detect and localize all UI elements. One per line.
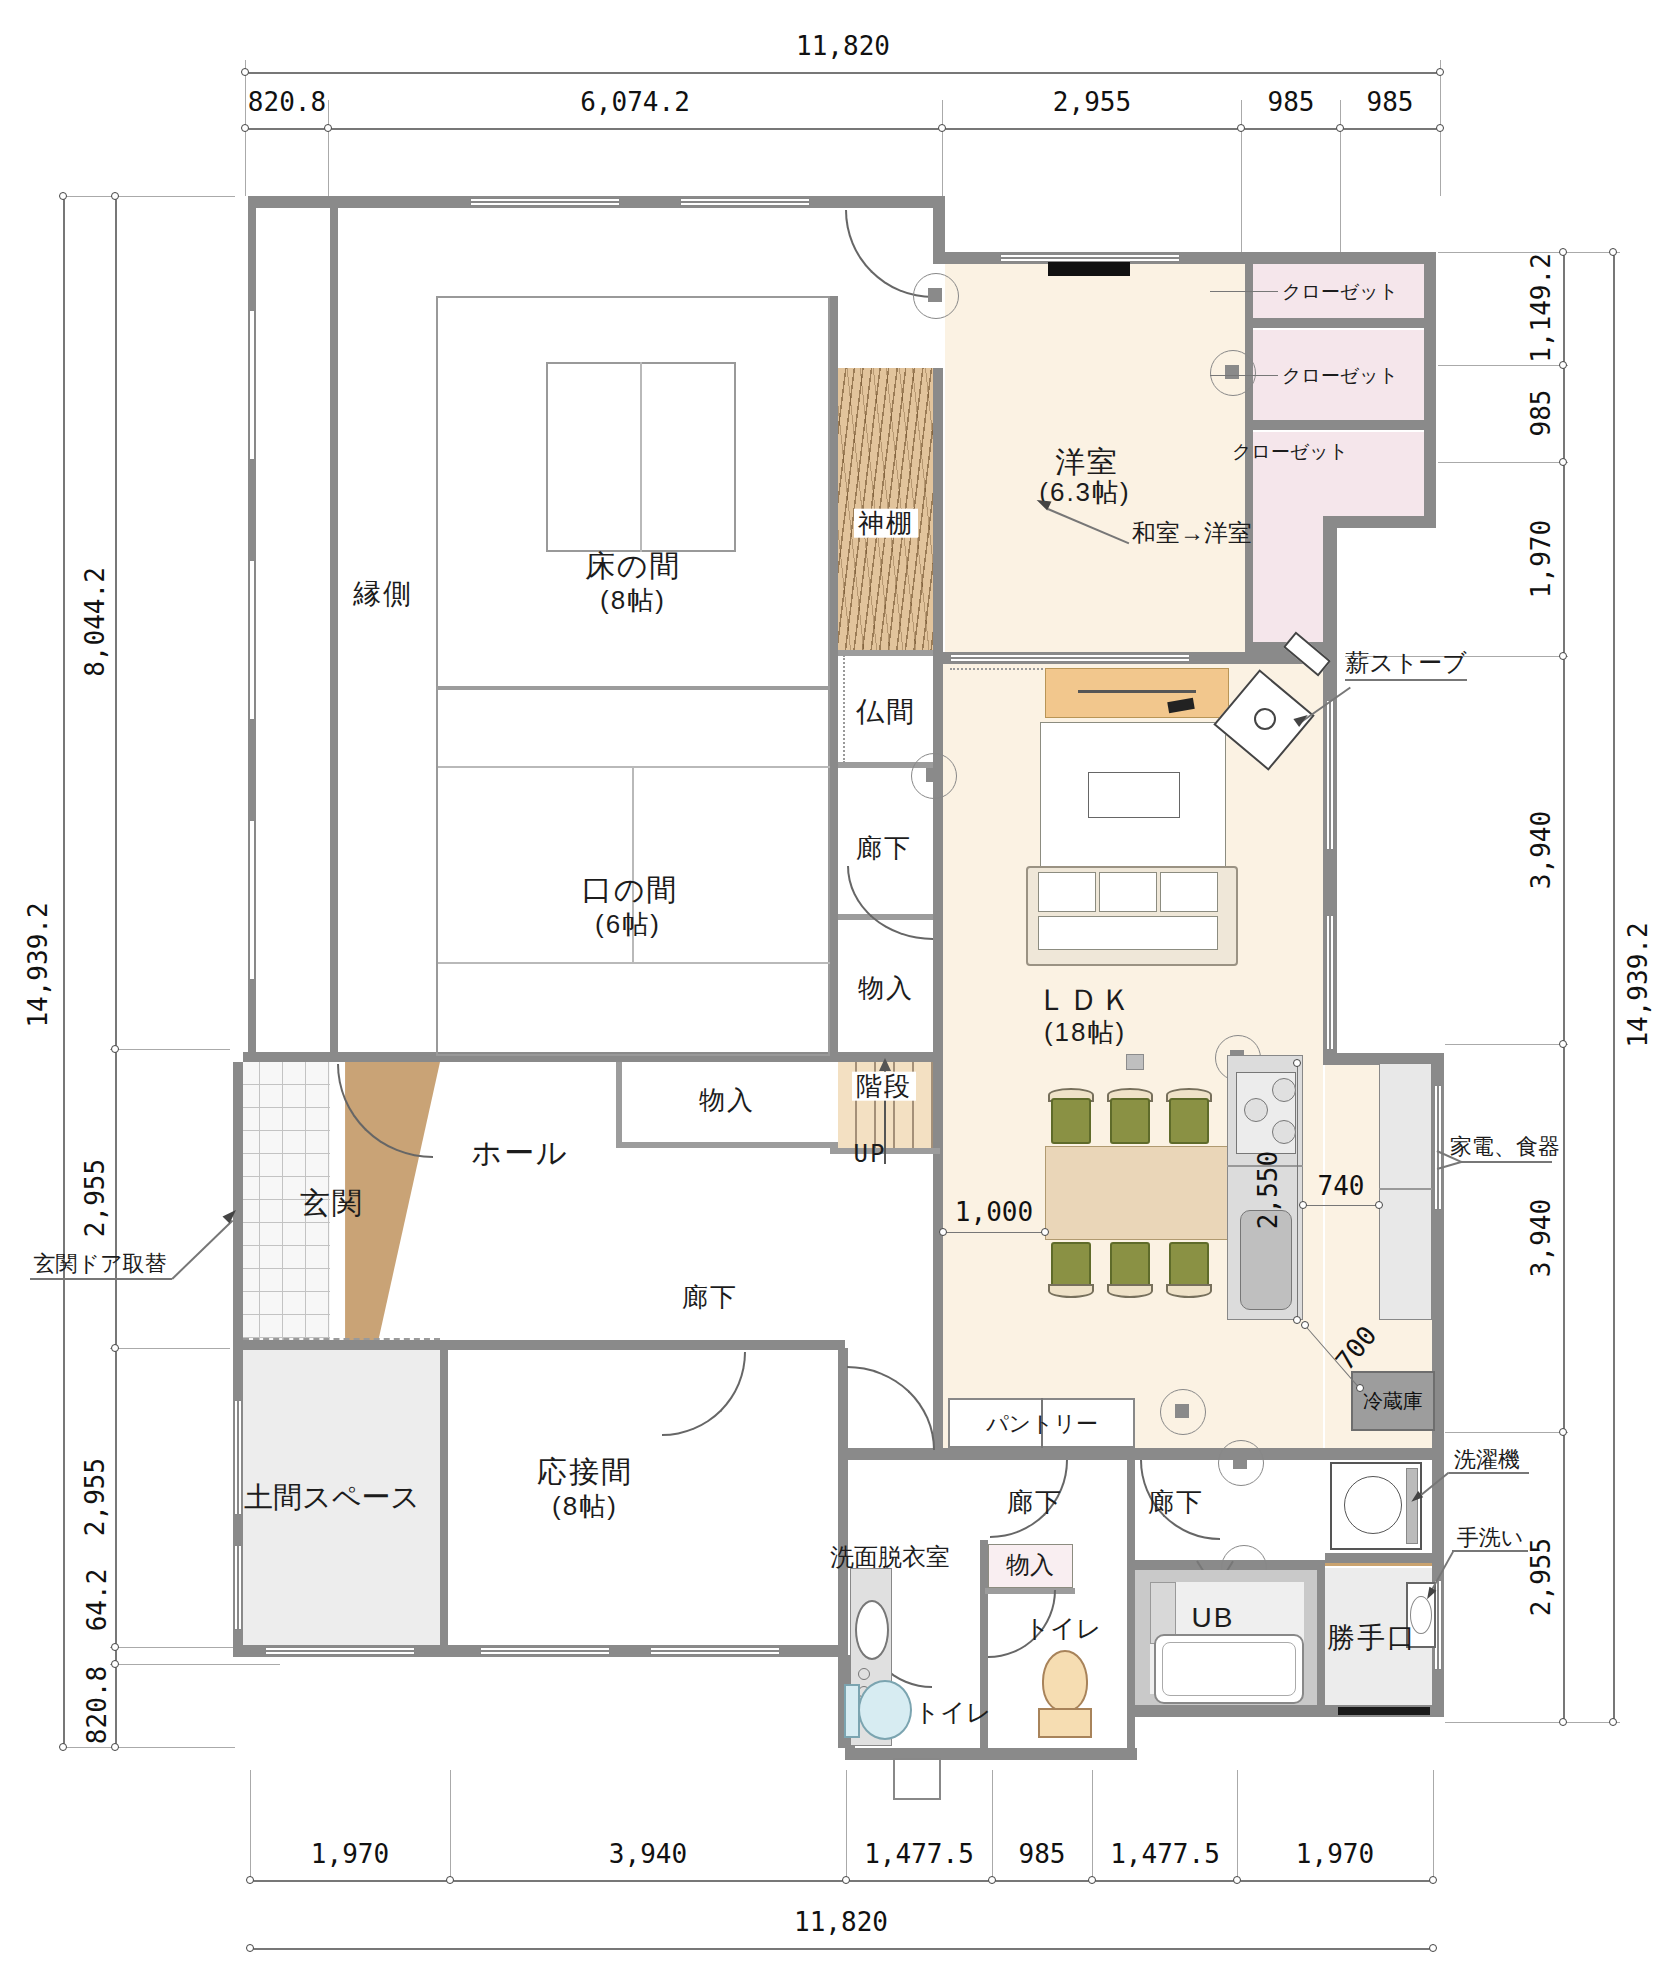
dim-tick: [241, 68, 249, 76]
wall-ub-katte-div: [1317, 1560, 1325, 1717]
dining-chair: [1051, 1242, 1091, 1288]
dim-left-total: 14,939.2: [23, 902, 53, 1027]
ext-line: [1237, 1770, 1238, 1880]
sofa-cushion: [1160, 872, 1218, 912]
window-kitchen-east: [1434, 1085, 1442, 1210]
label-hall: ホール: [471, 1133, 568, 1174]
butsuma-dotted-line: [843, 655, 845, 763]
refrigerator-label: 冷蔵庫: [1363, 1388, 1423, 1415]
label-senmen: 洗面脱衣室: [830, 1541, 950, 1573]
label-closet-2: クローゼット: [1282, 363, 1398, 389]
window-doma-west-2: [234, 1545, 242, 1630]
dim-line-bottom-total: [250, 1948, 1433, 1950]
label-ldk-size: (18帖): [1044, 1015, 1126, 1050]
label-tearai: 手洗い: [1457, 1523, 1524, 1553]
wall-closet-div1: [1253, 318, 1424, 328]
ext-line: [846, 1770, 847, 1880]
dining-table: [1045, 1146, 1229, 1240]
label-sentakuki: 洗濯機: [1454, 1445, 1520, 1475]
window-doma-west-1: [234, 1400, 242, 1515]
tv-soundbar: [1078, 690, 1196, 693]
label-monoiri-a: 物入: [858, 971, 914, 1006]
label-tokonoma-size: (8帖): [600, 583, 666, 618]
dim-line-right-total: [1613, 252, 1615, 1722]
living-table: [1088, 772, 1180, 818]
dim-aisle: 740: [1318, 1171, 1365, 1201]
dim-tick: [1436, 124, 1444, 132]
dim-bottom-5: 1,477.5: [1110, 1839, 1220, 1869]
label-ousetsuma: 応接間: [537, 1452, 633, 1493]
burner: [1272, 1078, 1296, 1102]
ext-line: [250, 1770, 251, 1880]
dim-tick: [1237, 124, 1245, 132]
ext-line: [1445, 1044, 1568, 1045]
dim-bottom-4: 985: [1019, 1839, 1066, 1869]
dim-tick: [1559, 1040, 1567, 1048]
dim-top-1: 820.8: [248, 87, 326, 117]
window-ldk-east-2: [1326, 915, 1334, 1050]
ext-line: [450, 1770, 451, 1880]
dim-right-1: 1,149.2: [1526, 253, 1556, 363]
wall-closet-div2: [1253, 420, 1424, 430]
ext-line: [110, 1049, 230, 1050]
dining-chair: [1110, 1098, 1150, 1144]
dim-tick: [111, 1743, 119, 1751]
burner: [1272, 1120, 1296, 1144]
label-butsuma: 仏間: [856, 693, 916, 731]
dim-line-aisle: [1303, 1205, 1379, 1206]
label-monoiri-b: 物入: [699, 1083, 755, 1118]
dim-right-6: 2,955: [1526, 1538, 1556, 1616]
dim-tick: [1088, 1876, 1096, 1884]
dim-tick: [1559, 652, 1567, 660]
dim-tick: [59, 192, 67, 200]
label-maki-stove: 薪ストーブ: [1345, 647, 1467, 679]
dim-line-top-total: [245, 72, 1440, 74]
dim-bottom-3: 1,477.5: [864, 1839, 974, 1869]
dim-bottom-2: 3,940: [609, 1839, 687, 1869]
washer-panel: [1406, 1468, 1418, 1544]
door-arc-corridor-mid: [847, 866, 933, 940]
dim-line-kitchen: [1297, 1063, 1298, 1320]
joint-post: [1233, 1455, 1247, 1469]
dim-tick: [59, 1743, 67, 1751]
dim-tick: [241, 124, 249, 132]
wall-doma-east: [440, 1350, 448, 1645]
dim-bottom-6: 1,970: [1296, 1839, 1374, 1869]
label-kuchinoma: 口の間: [582, 870, 679, 911]
label-monoiri-c: 物入: [1006, 1549, 1054, 1581]
dim-top-2: 6,074.2: [580, 87, 690, 117]
room-closet3-floor-lower: [1253, 516, 1323, 642]
tatami-seam: [438, 962, 830, 964]
katteguchi-sliding-door: [1338, 1707, 1430, 1715]
dim-tick: [111, 1660, 119, 1668]
doma-step-dashed: [243, 1338, 440, 1340]
dining-chair: [1169, 1098, 1209, 1144]
label-tokonoma: 床の間: [585, 546, 682, 587]
toilet2-tank: [1038, 1708, 1092, 1738]
dim-top-5: 985: [1367, 87, 1414, 117]
dim-tick: [1299, 1201, 1307, 1209]
leader-line: [171, 1220, 232, 1279]
window-youshitsu-top: [1000, 254, 1180, 262]
window-doma-south: [265, 1647, 415, 1655]
window-ousetsuma-2: [650, 1647, 780, 1655]
dim-tick: [1559, 248, 1567, 256]
dim-line-left-total: [63, 196, 65, 1747]
ext-line: [1340, 100, 1341, 252]
label-rouka-d: 廊下: [1148, 1485, 1204, 1520]
wall-right-step: [1330, 516, 1436, 528]
stair-arrow-head: [879, 1058, 891, 1071]
dim-tick: [111, 192, 119, 200]
label-rouka-b: 廊下: [682, 1280, 738, 1315]
ext-line: [110, 1348, 230, 1349]
dim-right-2: 985: [1526, 390, 1556, 437]
wood-stove-door: [1254, 708, 1276, 730]
dim-tick: [1293, 1059, 1301, 1067]
alcove-divider: [640, 362, 642, 552]
window-top-1: [470, 198, 620, 206]
ext-line: [1433, 1770, 1434, 1880]
wall-butsuma-north: [838, 650, 933, 656]
dim-tick: [1336, 124, 1344, 132]
bathtub-inner: [1162, 1642, 1296, 1696]
label-engawa: 縁側: [353, 575, 413, 613]
label-rouka-a: 廊下: [856, 831, 912, 866]
label-closet-1: クローゼット: [1282, 279, 1398, 305]
leader-line: [1449, 1472, 1529, 1474]
dim-line-right-seg: [1563, 252, 1565, 1722]
ext-line: [992, 1770, 993, 1880]
chair-back: [1166, 1284, 1212, 1298]
dim-tick: [246, 1944, 254, 1952]
dim-left-3: 2,955: [80, 1458, 110, 1536]
chair-back: [1048, 1284, 1094, 1298]
tv-board: [1045, 668, 1229, 718]
wall-corridor-west: [830, 296, 838, 1062]
dim-tick: [111, 1344, 119, 1352]
wall-ldk-west: [933, 368, 943, 1458]
dim-line-left-seg: [115, 196, 117, 1747]
sofa-seat: [1038, 916, 1218, 950]
label-ousetsuma-size: (8帖): [552, 1489, 618, 1524]
dim-tick: [1436, 68, 1444, 76]
ext-line: [60, 1747, 235, 1748]
dim-tick: [1429, 1876, 1437, 1884]
joint-post: [1175, 1404, 1189, 1418]
dim-bottom-1: 1,970: [311, 1839, 389, 1869]
dim-left-4: 64.2: [82, 1569, 112, 1632]
label-closet-3: クローゼット: [1232, 439, 1348, 465]
dim-tick: [988, 1876, 996, 1884]
window-engawa-3: [249, 820, 255, 980]
floor-plan: 11,820 820.8 6,074.2 2,955 985 985 1,970…: [0, 0, 1653, 1980]
sofa-cushion: [1099, 872, 1157, 912]
window-ldk-east-1: [1326, 700, 1334, 850]
dim-tick: [1293, 1316, 1301, 1324]
dim-tick: [1559, 361, 1567, 369]
door-arc-washroom: [847, 1366, 935, 1450]
dim-tick: [1041, 1228, 1049, 1236]
washing-machine-drum: [1344, 1476, 1402, 1534]
dim-left-1: 8,044.2: [80, 567, 110, 677]
dim-left-5: 820.8: [82, 1666, 112, 1744]
wall-right-upper: [1424, 252, 1436, 528]
ext-line: [1092, 1770, 1093, 1880]
dim-tick: [1559, 1428, 1567, 1436]
dining-chair: [1169, 1242, 1209, 1288]
sofa-cushion: [1038, 872, 1096, 912]
wall-monoiri-b-south: [616, 1142, 838, 1148]
label-toilet1: トイレ: [915, 1696, 992, 1729]
label-ub: UB: [1192, 1602, 1235, 1634]
closet-leader: [1210, 291, 1278, 292]
dim-right-3: 1,970: [1526, 520, 1556, 598]
dim-tick: [1609, 1718, 1617, 1726]
label-kaden-shokki: 家電、食器: [1450, 1132, 1560, 1162]
wall-bottom-left-wing: [845, 1748, 1137, 1760]
wall-engawa-inner: [330, 196, 338, 1062]
dim-tick: [446, 1876, 454, 1884]
ext-line: [1445, 1722, 1620, 1723]
label-youshitsu-size: (6.3帖): [1039, 475, 1130, 510]
joint-post: [928, 288, 942, 302]
dim-tick: [1559, 1718, 1567, 1726]
dim-right-4: 3,940: [1526, 811, 1556, 889]
label-rouka-c: 廊下: [1007, 1485, 1063, 1520]
label-up: UP: [854, 1140, 887, 1168]
dim-tick: [938, 124, 946, 132]
label-kuchinoma-size: (6帖): [595, 907, 661, 942]
dim-tick: [939, 1228, 947, 1236]
dim-tick: [1559, 458, 1567, 466]
joint-post: [926, 768, 940, 782]
ext-line: [60, 196, 235, 197]
closet-leader: [1210, 375, 1278, 376]
dim-line-top-seg: [245, 128, 1440, 130]
dim-tick: [1429, 1944, 1437, 1952]
dining-chair: [1110, 1242, 1150, 1288]
wall-laundry-south: [1325, 1553, 1444, 1563]
dim-line-dining: [943, 1232, 1045, 1233]
back-counter: [1379, 1063, 1432, 1320]
ext-line: [1438, 365, 1568, 366]
dim-right-total: 14,939.2: [1623, 922, 1653, 1047]
dim-right-5: 3,940: [1526, 1199, 1556, 1277]
joint-post: [1225, 365, 1239, 379]
dim-left-2: 2,955: [80, 1159, 110, 1237]
wall-toilet-ub-div: [1127, 1457, 1135, 1760]
dim-tick: [842, 1876, 850, 1884]
dining-chair: [1051, 1098, 1091, 1144]
wall-hall-south: [233, 1340, 845, 1350]
ext-line: [328, 100, 329, 196]
label-toilet2: トイレ: [1025, 1612, 1102, 1645]
dim-tick: [1301, 1321, 1309, 1329]
ext-line: [110, 1664, 280, 1665]
dim-tick: [324, 124, 332, 132]
toilet2-bowl: [1042, 1650, 1088, 1712]
dim-tick: [111, 1045, 119, 1053]
label-genkan: 玄関: [300, 1183, 364, 1224]
door-arc-ousetsuma: [662, 1352, 746, 1436]
label-doma: 土間スペース: [244, 1478, 420, 1518]
dim-dining: 1,000: [955, 1197, 1033, 1227]
wall-monoiri-b-west: [616, 1062, 622, 1148]
window-engawa-2: [249, 560, 255, 720]
label-pantry: パントリー: [986, 1409, 1098, 1439]
floor-item: [1126, 1054, 1144, 1070]
youshitsu-top-unit: [1048, 262, 1130, 276]
ext-line: [1438, 462, 1568, 463]
chair-back: [1107, 1284, 1153, 1298]
window-ldk-north: [950, 654, 1190, 662]
dim-tick: [111, 1643, 119, 1651]
faucet: [858, 1668, 870, 1680]
dim-top-4: 985: [1268, 87, 1315, 117]
toilet1-bowl: [858, 1680, 912, 1740]
label-genkan-door: 玄関ドア取替: [33, 1249, 166, 1279]
dim-bottom-total: 11,820: [794, 1907, 888, 1937]
dim-tick: [1233, 1876, 1241, 1884]
counter-line: [1379, 1188, 1432, 1190]
label-washitsu-to-youshitsu: 和室→洋室: [1132, 517, 1252, 549]
leader-line: [1345, 679, 1467, 681]
dim-tick: [246, 1876, 254, 1884]
entry-step: [893, 1758, 941, 1800]
leader-line: [1460, 1161, 1552, 1163]
dim-top-total: 11,820: [796, 31, 890, 61]
ext-line: [1241, 100, 1242, 252]
tatami-seam: [438, 766, 830, 768]
dim-tick: [1375, 1201, 1383, 1209]
label-katteguchi: 勝手口: [1327, 1619, 1417, 1657]
label-kaidan: 階段: [852, 1072, 916, 1101]
dim-tick: [1609, 248, 1617, 256]
window-top-2: [680, 198, 810, 206]
leader-line: [1452, 1550, 1528, 1552]
dim-tick: [1356, 1384, 1364, 1392]
leader-line: [30, 1278, 172, 1280]
vanity-sink: [855, 1600, 889, 1660]
window-ousetsuma-1: [480, 1647, 610, 1655]
tatami-room-divider: [436, 686, 830, 690]
ext-line: [1445, 1432, 1568, 1433]
window-engawa-1: [249, 310, 255, 460]
dim-kitchen: 2,550: [1253, 1151, 1283, 1229]
burner: [1244, 1098, 1268, 1122]
label-kamidana: 神棚: [854, 509, 918, 538]
dim-top-3: 2,955: [1053, 87, 1131, 117]
